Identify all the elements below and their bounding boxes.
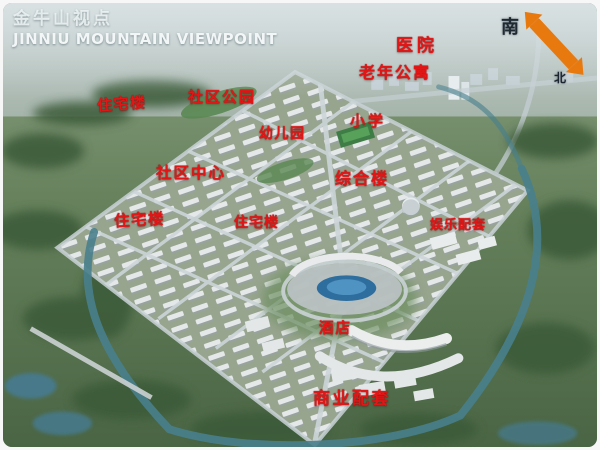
compass-north-label: 北 (554, 69, 566, 86)
aerial-rendering: 金牛山视点 JINNIU MOUNTAIN VIEWPOINT 南 北 医院 老… (3, 3, 597, 447)
compass-double-arrow-icon (529, 18, 578, 69)
compass-south-label: 南 (501, 13, 519, 39)
compass: 南 北 (482, 3, 597, 103)
viewport-frame: 金牛山视点 JINNIU MOUNTAIN VIEWPOINT 南 北 医院 老… (0, 0, 600, 450)
